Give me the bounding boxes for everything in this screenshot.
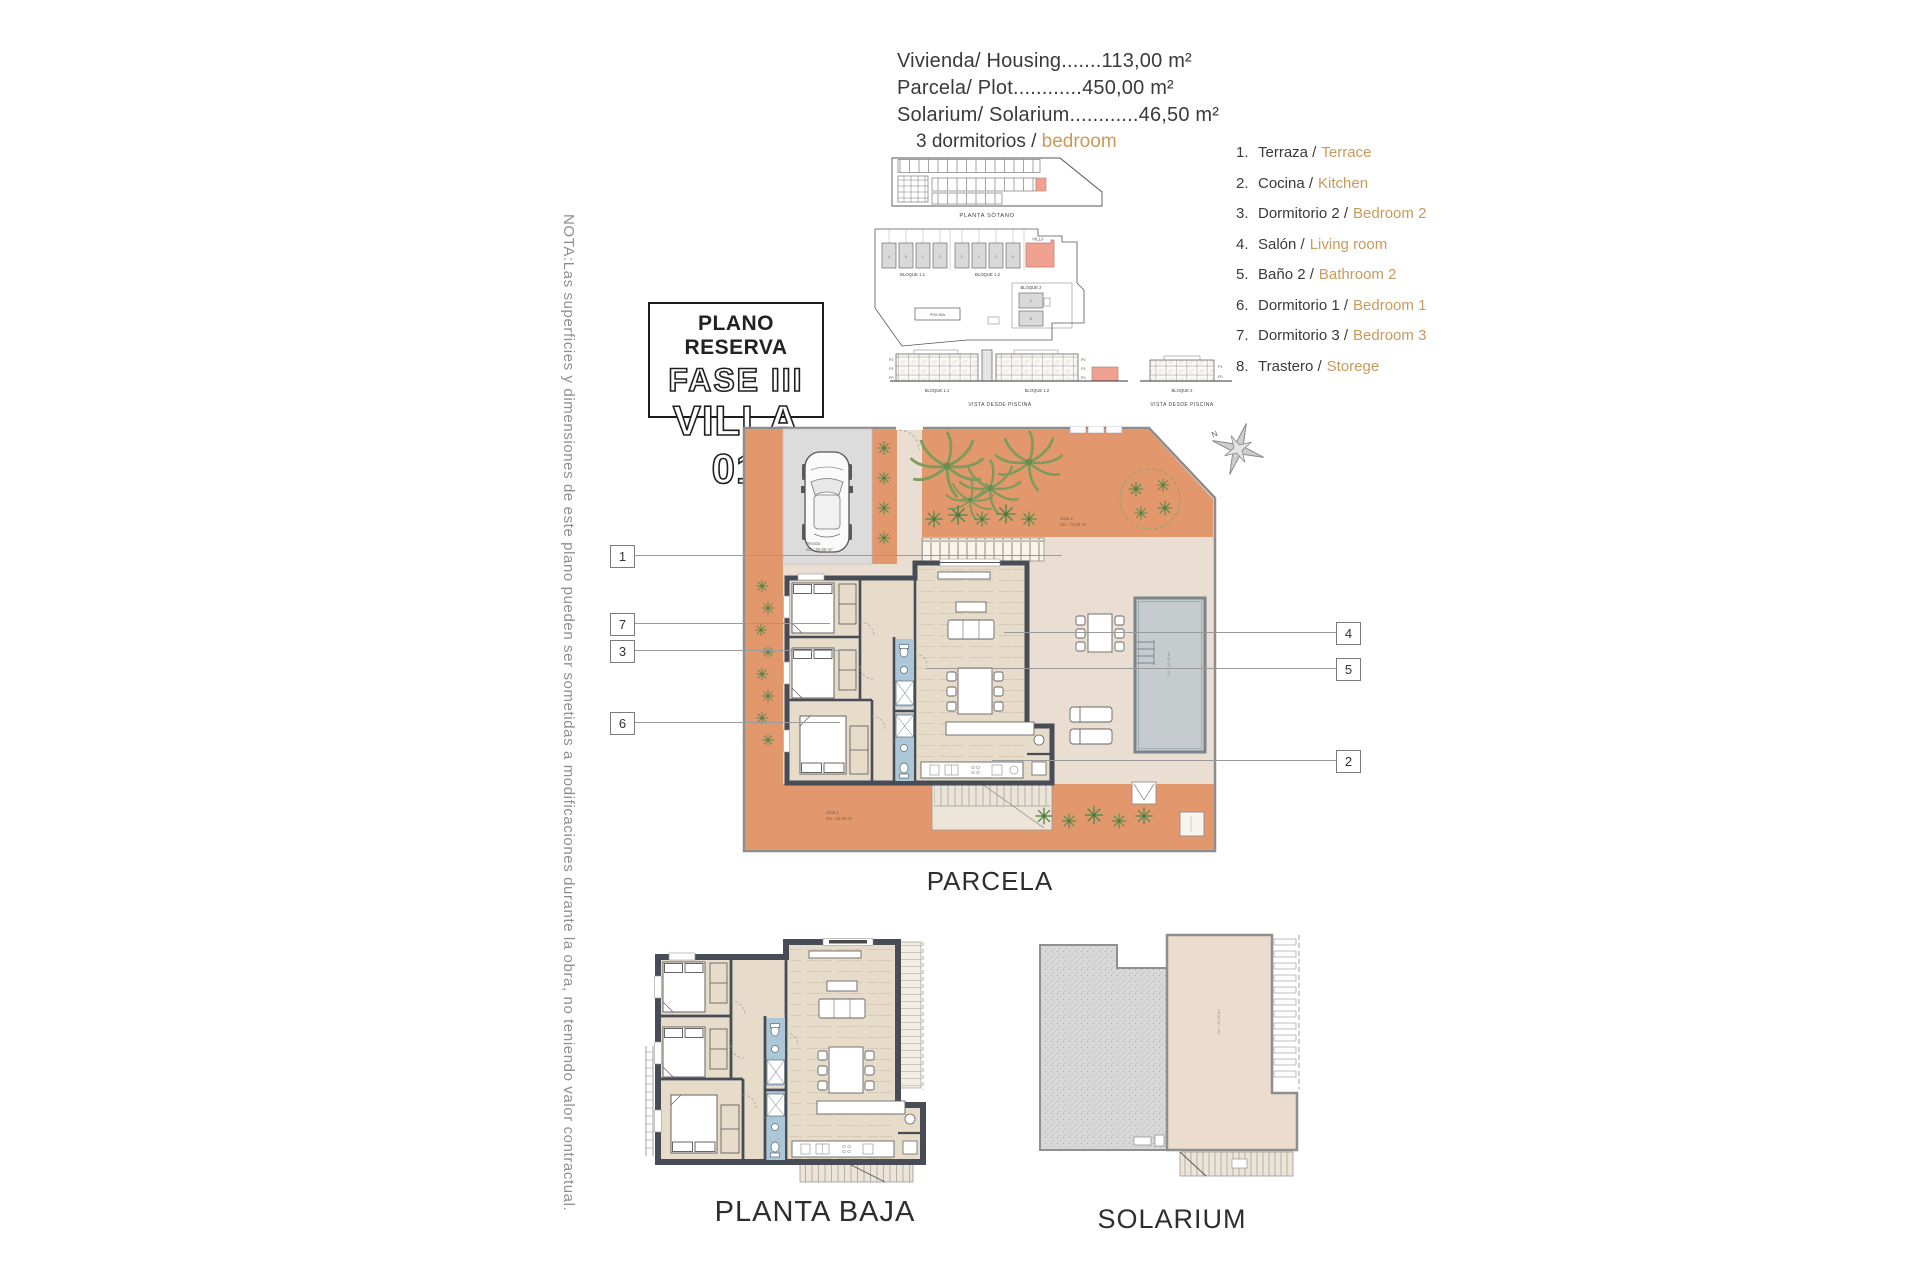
svg-text:BLOQUE 1.1: BLOQUE 1.1 <box>925 388 950 393</box>
callout-6: 6 <box>610 712 635 735</box>
bedrooms-line: 3 dormitorios / bedroom <box>916 131 1117 153</box>
svg-text:SU : 55,00 m²: SU : 55,00 m² <box>806 547 833 552</box>
planta-baja-plan <box>640 938 930 1186</box>
disclaimer-note: NOTA:Las superficies y dimensiones de es… <box>560 214 577 1114</box>
leader-line-3 <box>634 650 855 651</box>
leader-line-1 <box>634 555 1062 556</box>
zona2-label: zona 2 <box>1060 516 1074 521</box>
house-planta-baja <box>655 939 924 1163</box>
svg-text:BLOQUE 2: BLOQUE 2 <box>1172 388 1194 393</box>
bloque12-label: BLOQUE 1.2 <box>975 272 1001 277</box>
plot-entrance <box>896 426 923 430</box>
legend-item-dormitorio3: 7. Dormitorio 3 / Bedroom 3 <box>1236 327 1426 345</box>
deck-slats <box>922 538 1044 561</box>
elevation-bloque2: P1 P0 BLOQUE 2 VISTA DESDE PISCINA <box>1140 356 1232 408</box>
legend-item-terraza: 1. Terraza / Terrace <box>1236 144 1426 162</box>
terrace-deck <box>898 942 921 1088</box>
callout-4: 4 <box>1336 622 1361 645</box>
legend-item-dormitorio2: 3. Dormitorio 2 / Bedroom 2 <box>1236 205 1426 223</box>
villa-elevation-highlight <box>1092 367 1118 381</box>
plot-area-line: Parcela/ Plot............450,00 m² <box>897 75 1219 102</box>
piscina-label: PISCINA <box>930 313 946 317</box>
svg-text:SU : 62,00 m²: SU : 62,00 m² <box>826 816 853 821</box>
bedrooms-en: bedroom <box>1042 131 1117 152</box>
svg-text:P1: P1 <box>889 367 894 371</box>
highlighted-parking-stall <box>1036 178 1046 191</box>
site-basement-diagram: PLANTA SÓTANO <box>890 156 1105 224</box>
area-summary: Vivienda/ Housing.......113,00 m² Parcel… <box>897 48 1219 129</box>
leader-line-4 <box>1004 632 1336 633</box>
svg-text:E: E <box>961 254 964 259</box>
drain-mark <box>1132 782 1156 804</box>
callout-7: 7 <box>610 613 635 636</box>
basement-caption: PLANTA SÓTANO <box>959 212 1014 219</box>
plan-sheet: Vivienda/ Housing.......113,00 m² Parcel… <box>0 0 1920 1280</box>
house-parcela <box>784 559 1053 783</box>
legend-item-salon: 4. Salón / Living room <box>1236 236 1426 254</box>
housing-area-line: Vivienda/ Housing.......113,00 m² <box>897 48 1219 75</box>
legend-item-trastero: 8. Trastero / Storege <box>1236 358 1426 376</box>
callout-1: 1 <box>610 545 635 568</box>
exterior-stairs <box>932 784 1052 830</box>
storage-box <box>1180 812 1204 836</box>
leader-line-2 <box>992 760 1336 761</box>
callout-2: 2 <box>1336 750 1361 773</box>
svg-text:G: G <box>994 254 997 259</box>
car-icon <box>801 452 853 552</box>
svg-text:D: D <box>939 254 942 259</box>
callout-5: 5 <box>1336 658 1361 681</box>
vista-caption-right: VISTA DESDE PISCINA <box>1150 402 1213 408</box>
parcela-caption: PARCELA <box>840 866 1140 897</box>
callout-3: 3 <box>610 640 635 663</box>
leader-line-7 <box>634 623 830 624</box>
solarium-area-line: Solarium/ Solarium............46,50 m² <box>897 102 1219 129</box>
elevation-bloque11-12: P2 P1 P0 P2 P1 P0 BLOQUE 1.1 BLOQUE 1.2 … <box>889 350 1128 408</box>
bloque2-label: BLOQUE 2 <box>1021 285 1043 290</box>
parcela-plan: SU : 32,00 m² <box>742 426 1218 854</box>
svg-text:SU : 70,00 m²: SU : 70,00 m² <box>1060 522 1087 527</box>
title-plano-reserva: PLANO RESERVA <box>650 312 822 360</box>
parking-cluster <box>898 176 928 202</box>
outdoor-dining <box>1076 614 1124 652</box>
villa-label: VILLA <box>1032 237 1044 242</box>
dimension-boxes <box>1070 426 1122 433</box>
solarium-stairs <box>1180 1152 1293 1176</box>
leader-line-6 <box>634 722 840 723</box>
leader-line-5 <box>926 668 1336 669</box>
legend-item-cocina: 2. Cocina / Kitchen <box>1236 175 1426 193</box>
parking-row-bottom <box>932 193 1002 204</box>
svg-text:B: B <box>1030 316 1033 321</box>
legend-item-bano2: 5. Baño 2 / Bathroom 2 <box>1236 266 1426 284</box>
svg-text:A: A <box>1030 298 1033 303</box>
planta-baja-caption: PLANTA BAJA <box>665 1196 965 1229</box>
legend-item-dormitorio1: 6. Dormitorio 1 / Bedroom 1 <box>1236 297 1426 315</box>
svg-text:A: A <box>888 254 891 259</box>
parking-row-top <box>898 160 1040 173</box>
solarium-area-note: SU : 46,50 m² <box>1216 1009 1221 1034</box>
solarium-caption: SOLARIUM <box>1022 1204 1322 1235</box>
roof-area <box>1040 945 1172 1150</box>
side-deck <box>646 1046 653 1156</box>
site-plan-diagram: A B C D E F G H VILLA BLOQUE 1.1 BLOQUE … <box>872 228 1122 354</box>
room-legend: 1. Terraza / Terrace 2. Cocina / Kitchen… <box>1236 144 1426 388</box>
svg-text:P1: P1 <box>1081 367 1086 371</box>
svg-text:P2: P2 <box>1081 358 1086 362</box>
svg-text:P0: P0 <box>889 376 894 380</box>
svg-text:B: B <box>905 254 908 259</box>
terraza-label: Terraza <box>806 541 821 546</box>
svg-text:H: H <box>1012 254 1015 259</box>
bedrooms-es: 3 dormitorios / <box>916 131 1036 152</box>
zona1-label: zona 1 <box>826 810 840 815</box>
site-elevations-diagram: P2 P1 P0 P2 P1 P0 BLOQUE 1.1 BLOQUE 1.2 … <box>888 348 1258 420</box>
pergola-slats <box>1274 935 1299 1089</box>
parking-row-mid <box>932 178 1036 191</box>
svg-text:BLOQUE 1.2: BLOQUE 1.2 <box>1025 388 1050 393</box>
title-fase: FASE III <box>650 362 822 399</box>
villa-unit-highlight <box>1026 240 1054 267</box>
svg-text:P0: P0 <box>1081 376 1086 380</box>
bloque11-label: BLOQUE 1.1 <box>900 272 926 277</box>
svg-text:P0: P0 <box>1218 375 1223 379</box>
pool: SU : 32,00 m² <box>1135 598 1205 752</box>
vista-caption-left: VISTA DESDE PISCINA <box>968 402 1031 408</box>
svg-text:P1: P1 <box>1218 365 1223 369</box>
svg-text:C: C <box>922 254 925 259</box>
solarium-plan: SU : 46,50 m² <box>1038 926 1303 1181</box>
title-box: PLANO RESERVA FASE III VILLA 01 <box>648 302 824 418</box>
svg-text:P2: P2 <box>889 358 894 362</box>
svg-text:SU : 32,00 m²: SU : 32,00 m² <box>1166 651 1171 676</box>
